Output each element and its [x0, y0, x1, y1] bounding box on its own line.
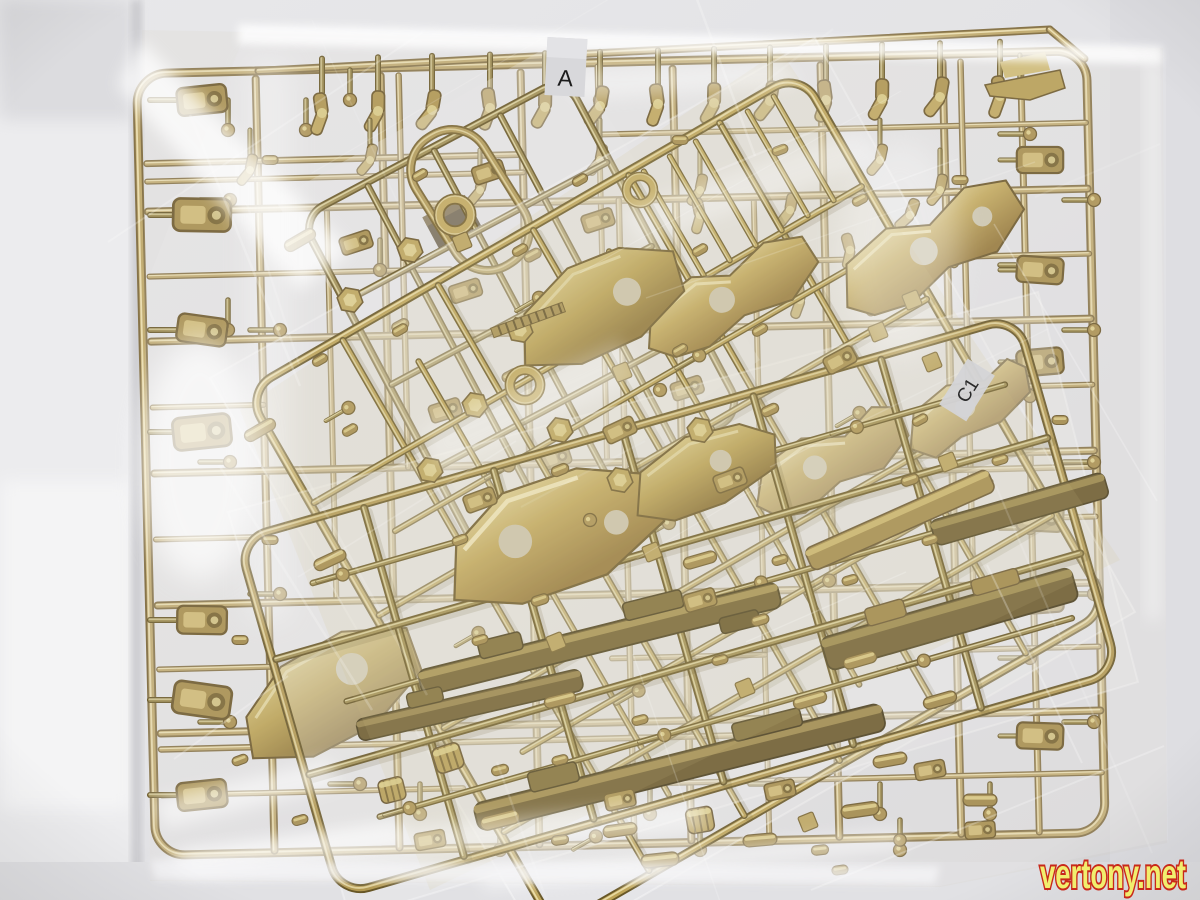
- svg-text:A: A: [557, 65, 574, 92]
- svg-text:vertony.net: vertony.net: [1040, 851, 1186, 897]
